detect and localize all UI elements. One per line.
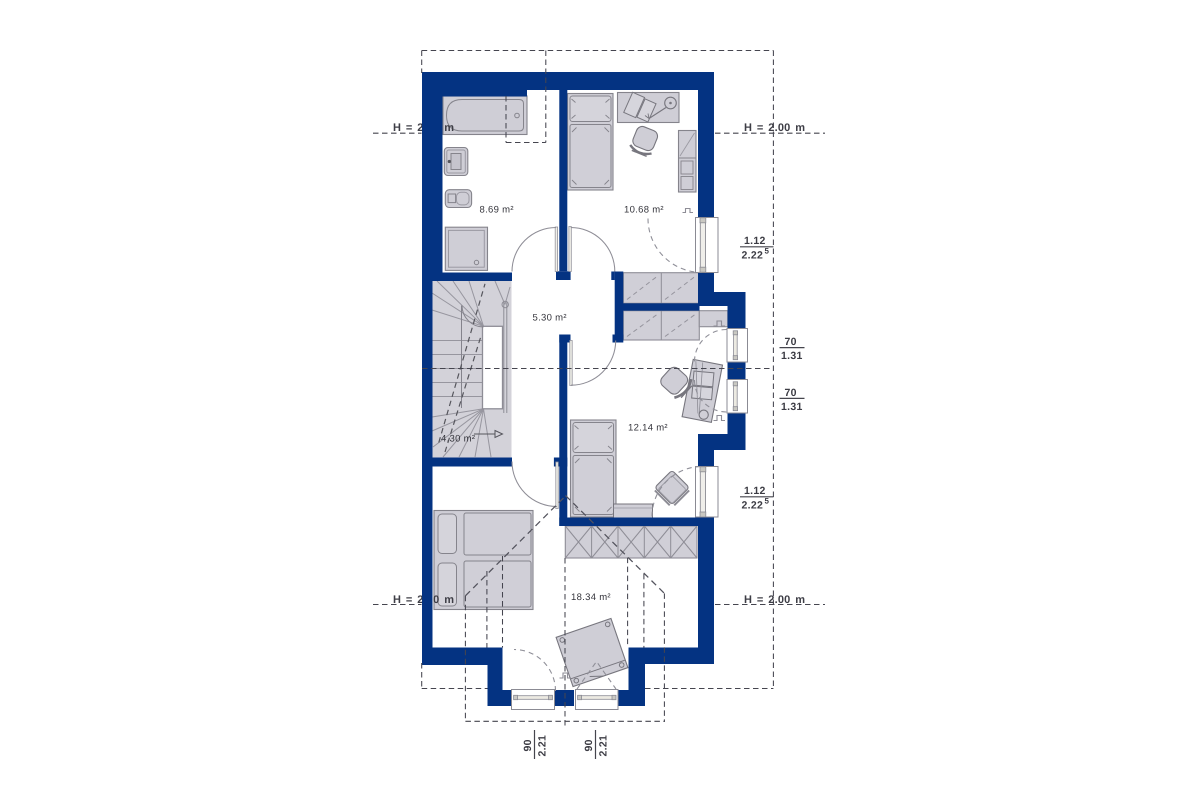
svg-text:90: 90 (522, 739, 534, 751)
svg-text:2.22: 2.22 (742, 250, 764, 262)
svg-text:2.21: 2.21 (537, 735, 549, 757)
svg-text:H = 2.00 m: H = 2.00 m (744, 122, 805, 134)
svg-text:5.30 m²: 5.30 m² (533, 313, 567, 324)
svg-text:1.31: 1.31 (781, 401, 803, 413)
svg-text:18.34 m²: 18.34 m² (571, 592, 611, 603)
svg-text:12.14 m²: 12.14 m² (628, 423, 668, 434)
svg-text:90: 90 (583, 739, 595, 751)
svg-text:1.31: 1.31 (781, 350, 803, 362)
svg-text:5: 5 (765, 497, 770, 506)
svg-text:8.69 m²: 8.69 m² (480, 205, 514, 216)
svg-text:1.12: 1.12 (744, 235, 766, 247)
svg-text:4.30 m²: 4.30 m² (441, 434, 475, 445)
svg-text:5: 5 (765, 247, 770, 256)
svg-text:1.12: 1.12 (744, 485, 766, 497)
svg-text:H = 2.00 m: H = 2.00 m (744, 594, 805, 606)
svg-text:10.68 m²: 10.68 m² (624, 205, 664, 216)
svg-text:2.21: 2.21 (598, 735, 610, 757)
svg-text:70: 70 (785, 336, 797, 348)
svg-text:70: 70 (785, 387, 797, 399)
svg-text:2.22: 2.22 (742, 500, 764, 512)
